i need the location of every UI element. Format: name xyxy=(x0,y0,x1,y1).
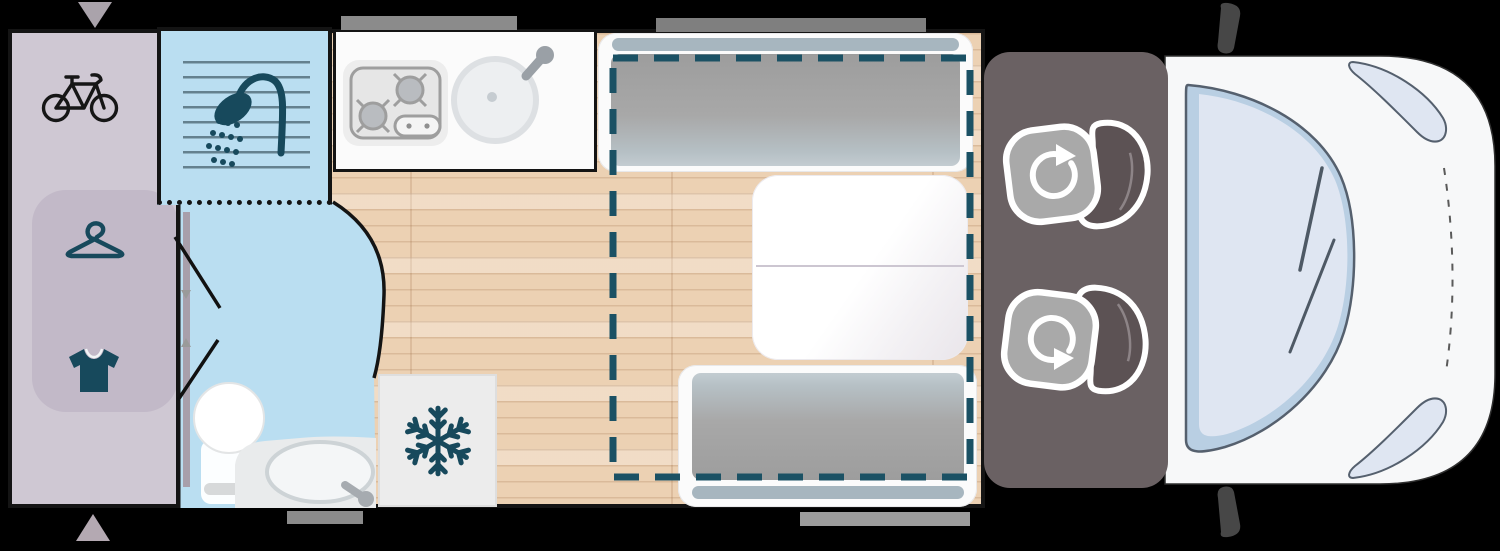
shower-cubicle xyxy=(157,27,332,205)
swivel-seat-bottom xyxy=(990,274,1155,406)
hob-icon xyxy=(343,60,448,146)
window-kitchen xyxy=(341,16,517,30)
entry-arrow-bottom-icon xyxy=(76,514,110,541)
drop-down-bed-outline xyxy=(605,49,979,486)
washbasin-counter xyxy=(235,437,376,509)
window-dinette-bottom xyxy=(800,512,970,526)
tshirt-icon xyxy=(66,346,122,396)
kitchen-block xyxy=(333,29,597,172)
cab-front xyxy=(1155,0,1500,551)
fridge-block xyxy=(378,374,497,507)
wing-mirror-top-icon xyxy=(1218,3,1241,54)
bench-headrest xyxy=(692,486,964,499)
seat-base xyxy=(1003,123,1102,225)
shower-icon xyxy=(191,59,303,175)
entry-arrow-top-icon xyxy=(78,2,112,28)
bicycle-icon xyxy=(40,64,120,124)
cab-seats-area xyxy=(984,52,1168,488)
kitchen-fixtures xyxy=(336,32,594,169)
wing-mirror-bottom-icon xyxy=(1218,487,1241,538)
kitchen-sink xyxy=(454,46,554,141)
entry-door-marker xyxy=(287,511,363,524)
floorplan-stage xyxy=(0,0,1500,551)
window-dinette-top xyxy=(656,18,926,32)
shower-droplets xyxy=(206,118,243,167)
hanger-icon xyxy=(64,218,126,264)
snowflake-icon xyxy=(397,400,479,482)
swivel-seat-top xyxy=(992,108,1157,240)
